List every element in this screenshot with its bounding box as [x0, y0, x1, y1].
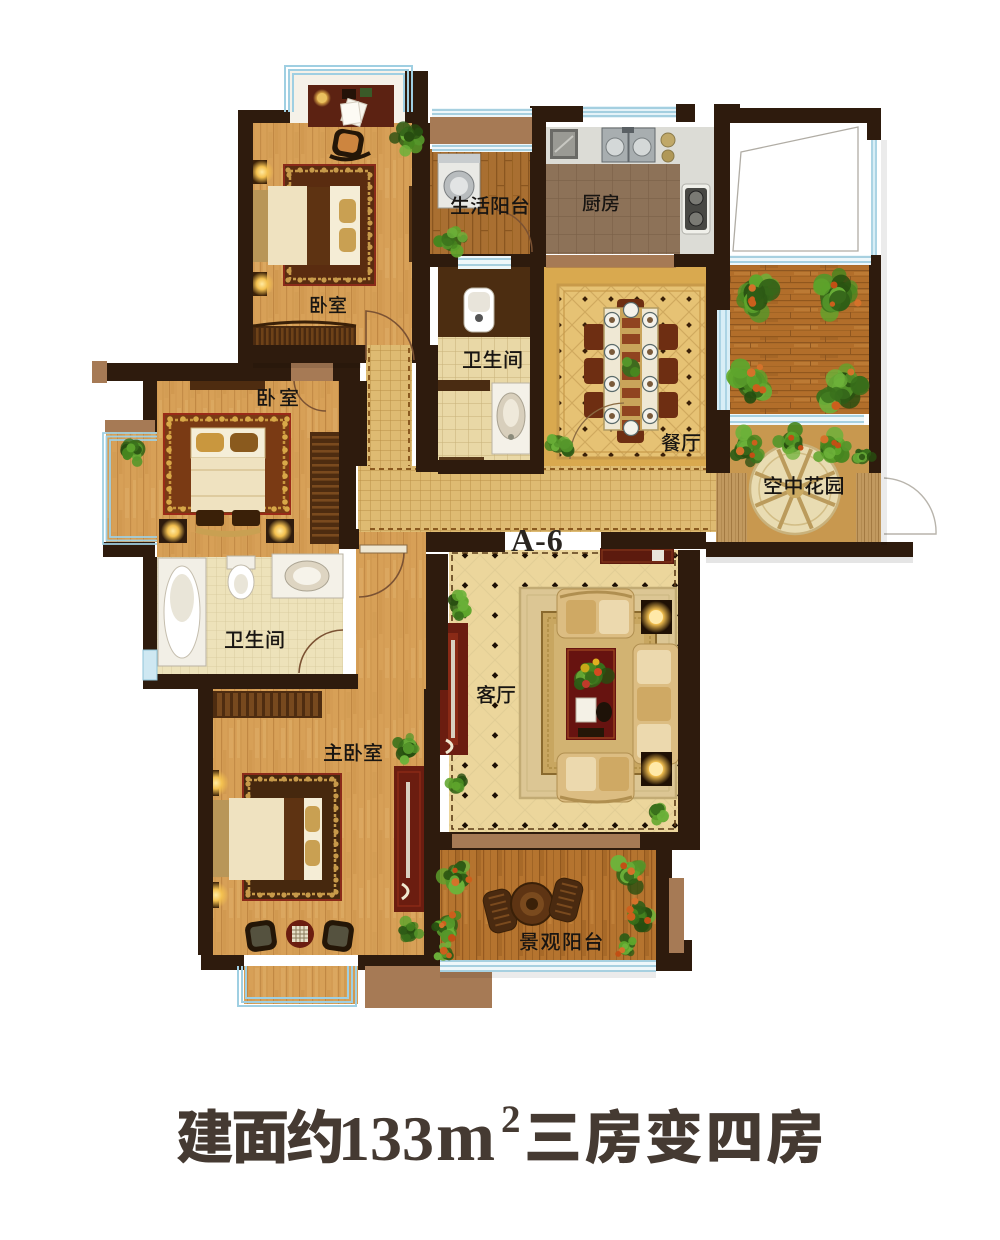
svg-text:A-6: A-6	[511, 522, 564, 558]
svg-text:2: 2	[501, 1098, 521, 1141]
svg-text:m: m	[436, 1098, 495, 1176]
svg-text:133: 133	[338, 1103, 434, 1174]
